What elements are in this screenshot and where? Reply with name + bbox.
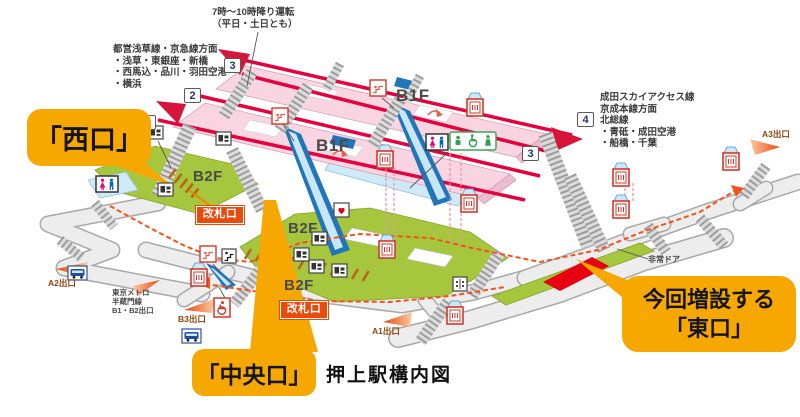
floor-label-b1f: B1F — [396, 86, 430, 106]
escalator-icon — [370, 80, 386, 96]
exit-arrow-a3 — [750, 139, 780, 155]
floor-label-b2f: B2F — [288, 220, 318, 237]
west-directions: 都営浅草線・京急線方面・浅草・東銀座・新橋・西馬込・品川・羽田空港・横浜 — [113, 44, 227, 90]
bus-icon — [182, 329, 201, 343]
gate-label-west: 改札口 — [196, 206, 244, 224]
gate-label-central: 改札口 — [280, 301, 328, 319]
elevator-icon — [377, 145, 393, 168]
coin-locker-icon — [453, 277, 467, 291]
floor-label-b2f: B2F — [193, 168, 223, 185]
aed-icon — [334, 203, 349, 217]
page-title: 押上駅構内図 — [326, 360, 452, 387]
elevator-icon — [467, 93, 483, 116]
callout-west-exit: 「西口」 — [27, 109, 151, 166]
exit-label-a1: A1出口 — [372, 325, 400, 337]
elevator-icon — [613, 195, 629, 218]
exit-label-b3: B3出口 — [178, 313, 206, 325]
callout-central-exit: 「中央口」 — [192, 349, 316, 396]
platform-number-4-right: 4 — [577, 112, 594, 127]
ticket-machine-icon — [158, 183, 173, 196]
exit-label-metro: 東京メトロ半蔵門線B1・B2出口 — [112, 288, 154, 315]
platform-number-2-left: 2 — [184, 88, 201, 103]
elevator-icon — [191, 263, 207, 286]
wheelchair-icon — [214, 298, 230, 317]
floor-label-b1f: B1F — [316, 136, 350, 156]
east-directions: 成田スカイアクセス線京成本線方面北総線・青砥・成田空港・船橋・千葉 — [600, 92, 695, 150]
elevator-icon — [723, 147, 739, 170]
floor-label-b2f: B2F — [284, 277, 314, 294]
exit-label-a3: A3出口 — [762, 128, 790, 140]
station-map: 7時〜10時降り運転（平日・土日とも） 都営浅草線・京急線方面・浅草・東銀座・新… — [0, 0, 800, 417]
ticket-machine-icon — [216, 132, 231, 145]
emergency-door-label: 非常ドア — [648, 254, 680, 265]
multifunction-toilet-icon — [450, 132, 496, 150]
exit-label-a2: A2出口 — [48, 277, 76, 289]
elevator-icon — [379, 235, 395, 258]
escalator-note: 7時〜10時降り運転（平日・土日とも） — [212, 7, 298, 30]
ticket-machine-icon — [309, 260, 324, 273]
elevator-icon — [447, 301, 463, 324]
elevator-icon — [613, 163, 629, 186]
callout-east-exit: 今回増設する「東口」 — [622, 276, 796, 352]
ticket-machine-icon — [332, 264, 347, 277]
elevator-icon — [461, 189, 477, 212]
platform-number-3-left: 3 — [224, 58, 241, 73]
escalator-icon — [200, 246, 216, 262]
ticket-machine-icon — [294, 248, 309, 261]
stairs-icon — [222, 249, 236, 263]
toilet-icon — [96, 176, 118, 192]
escalator-icon — [272, 108, 288, 124]
toilet-icon — [426, 134, 448, 150]
platform-number-3-right: 3 — [522, 146, 539, 161]
